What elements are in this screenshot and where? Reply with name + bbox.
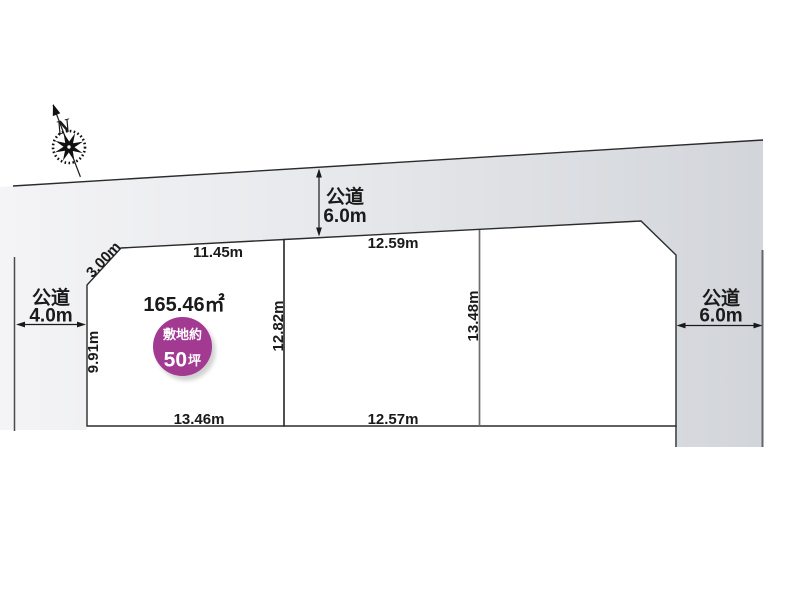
top-road-name: 公道 (326, 185, 364, 208)
site-plan-canvas: N 公道 6.0m 公道 4.0m 公道 6.0m 11.45m 3.00m 9… (0, 0, 800, 600)
area-badge-line1: 敷地約 (163, 327, 202, 342)
main-plot-dim-left: 9.91m (85, 331, 102, 374)
road-area (0, 140, 763, 447)
main-plot-area-label: 165.46㎡ (143, 292, 224, 316)
top-road-width: 6.0m (323, 206, 366, 227)
main-plot-dim-bottom: 13.46m (174, 411, 225, 428)
adjacent-plot-dim-divider: 13.48m (465, 291, 482, 342)
main-plot-dim-right: 12.82m (270, 301, 287, 352)
right-road-width: 6.0m (699, 306, 742, 327)
main-plot-dim-top: 11.45m (193, 244, 243, 261)
site-plan-diagram: N 公道 6.0m 公道 4.0m 公道 6.0m 11.45m 3.00m 9… (0, 0, 800, 600)
adjacent-plot-dim-top: 12.59m (368, 235, 419, 252)
left-road-width: 4.0m (29, 306, 72, 327)
adjacent-plot-dim-bottom: 12.57m (368, 411, 419, 428)
area-badge-unit: 坪 (188, 353, 201, 368)
compass: N (53, 104, 85, 177)
compass-rose-center (67, 145, 71, 149)
compass-arrowhead (53, 104, 61, 116)
area-badge-value: 50 (164, 349, 187, 372)
